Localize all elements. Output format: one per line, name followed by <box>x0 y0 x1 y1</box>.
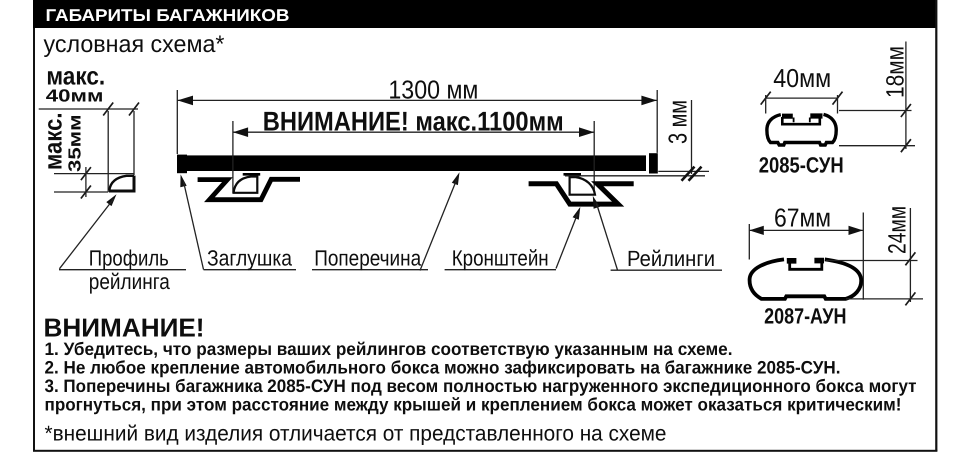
svg-text:40мм: 40мм <box>46 85 104 105</box>
svg-text:2085-СУН: 2085-СУН <box>759 152 844 177</box>
svg-text:35мм: 35мм <box>65 115 85 173</box>
svg-text:67мм: 67мм <box>774 202 831 232</box>
svg-text:ГАБАРИТЫ БАГАЖНИКОВ: ГАБАРИТЫ БАГАЖНИКОВ <box>46 6 290 25</box>
svg-text:макс.: макс. <box>40 113 68 171</box>
svg-text:прогнуться, при этом расстояни: прогнуться, при этом расстояние между кр… <box>45 395 902 415</box>
svg-text:Кронштейн: Кронштейн <box>452 246 549 271</box>
svg-text:24мм: 24мм <box>883 206 911 254</box>
svg-text:ВНИМАНИЕ!: ВНИМАНИЕ! <box>44 312 205 342</box>
svg-text:ВНИМАНИЕ! макс.1100мм: ВНИМАНИЕ! макс.1100мм <box>263 107 564 137</box>
svg-text:1. Убедитесь, что размеры ваши: 1. Убедитесь, что размеры ваших рейлинго… <box>45 339 733 359</box>
svg-text:рейлинга: рейлинга <box>89 269 171 294</box>
svg-text:Профиль: Профиль <box>89 246 169 271</box>
svg-text:Заглушка: Заглушка <box>207 246 293 271</box>
svg-text:1300 мм: 1300 мм <box>388 74 478 104</box>
svg-text:Поперечина: Поперечина <box>314 246 422 271</box>
svg-text:Рейлинги: Рейлинги <box>627 246 715 271</box>
svg-text:2087-АУН: 2087-АУН <box>764 303 846 328</box>
svg-text:3 мм: 3 мм <box>663 100 693 144</box>
svg-text:18мм: 18мм <box>881 46 909 98</box>
svg-text:2. Не любое крепление автомоби: 2. Не любое крепление автомобильного бок… <box>45 358 841 378</box>
svg-text:40мм: 40мм <box>773 63 831 93</box>
svg-text:3. Поперечины багажника 2085-С: 3. Поперечины багажника 2085-СУН под вес… <box>45 376 917 396</box>
svg-text:условная схема*: условная схема* <box>44 31 225 58</box>
svg-text:*внешний вид изделия отличаетс: *внешний вид изделия отличается от предс… <box>45 422 667 446</box>
